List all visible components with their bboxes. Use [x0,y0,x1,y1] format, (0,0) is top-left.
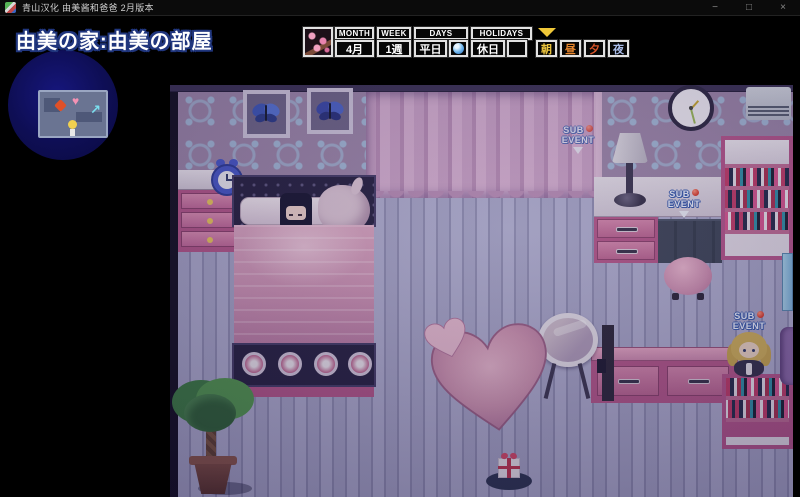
week-value: 1週 [377,40,411,57]
table-lamp [608,133,652,209]
event-dot-icon [692,189,699,196]
time-cursor-icon [538,28,556,37]
butterfly-frame [243,90,290,138]
heart-rug [422,319,562,435]
event-dot-icon [757,311,764,318]
location-title: 由美の家:由美の部屋 [16,25,213,54]
time-morning: 朝 [536,40,557,57]
holiday-empty-box [507,40,527,57]
room-scene: SUB EVENT SUB EVENT SUB EVENT [170,85,793,497]
wall-clock [668,85,714,131]
event-arrow-icon [573,147,583,154]
window-title: 青山汉化 由美酱和爸爸 2月版本 [22,1,154,14]
app-window: 青山汉化 由美酱和爸爸 2月版本 − □ × [0,0,800,497]
pouf-stool [664,257,712,301]
sub-event-marker[interactable]: SUB EVENT [720,311,778,331]
event-dot-icon [586,125,593,132]
blue-orb-icon [453,43,464,54]
game-viewport[interactable]: SUB EVENT SUB EVENT SUB EVENT ♥ ↗ [0,16,800,497]
mirror-pole [602,325,614,401]
minimap: ♥ ↗ [8,50,118,160]
bed [232,175,376,397]
gift-box[interactable] [486,450,532,492]
close-button[interactable]: × [766,0,800,16]
calendar-icon [303,27,333,57]
minimap-player-dot [68,120,77,129]
sub-event-marker[interactable]: SUB EVENT [552,125,604,154]
event-arrow-icon [679,211,689,218]
butterfly-icon [251,101,281,125]
days-label: DAYS [414,27,468,40]
butterfly-frame [307,88,353,134]
weekday-orb [449,40,468,57]
week-label: WEEK [377,27,411,40]
maximize-button[interactable]: □ [732,0,766,16]
doll[interactable] [726,330,772,378]
sub-event-marker[interactable]: SUB EVENT [656,189,712,218]
time-noon: 昼 [560,40,581,57]
minimap-arrow-icon: ↗ [90,102,101,118]
bookshelf-tall [721,136,793,260]
minimap-heart-icon: ♥ [72,94,79,108]
bed-blanket [234,225,374,345]
teddy-bear [780,327,793,385]
month-value: 4月 [335,40,374,57]
titlebar: 青山汉化 由美酱和爸爸 2月版本 − □ × [0,0,800,16]
month-label: MONTH [335,27,374,40]
app-icon [5,2,16,13]
minimize-button[interactable]: − [698,0,732,16]
days-value: 平日 [414,40,447,57]
window-controls: − □ × [698,0,800,16]
holidays-label: HOLIDAYS [471,27,532,40]
potted-plant [172,378,256,497]
minimap-room: ♥ ↗ [38,90,108,138]
butterfly-icon [315,99,345,123]
blue-door [782,253,793,311]
holidays-value: 休日 [471,40,505,57]
bookshelf-low [722,374,793,449]
air-conditioner [746,87,791,120]
time-evening: 夕 [584,40,605,57]
time-night: 夜 [608,40,629,57]
